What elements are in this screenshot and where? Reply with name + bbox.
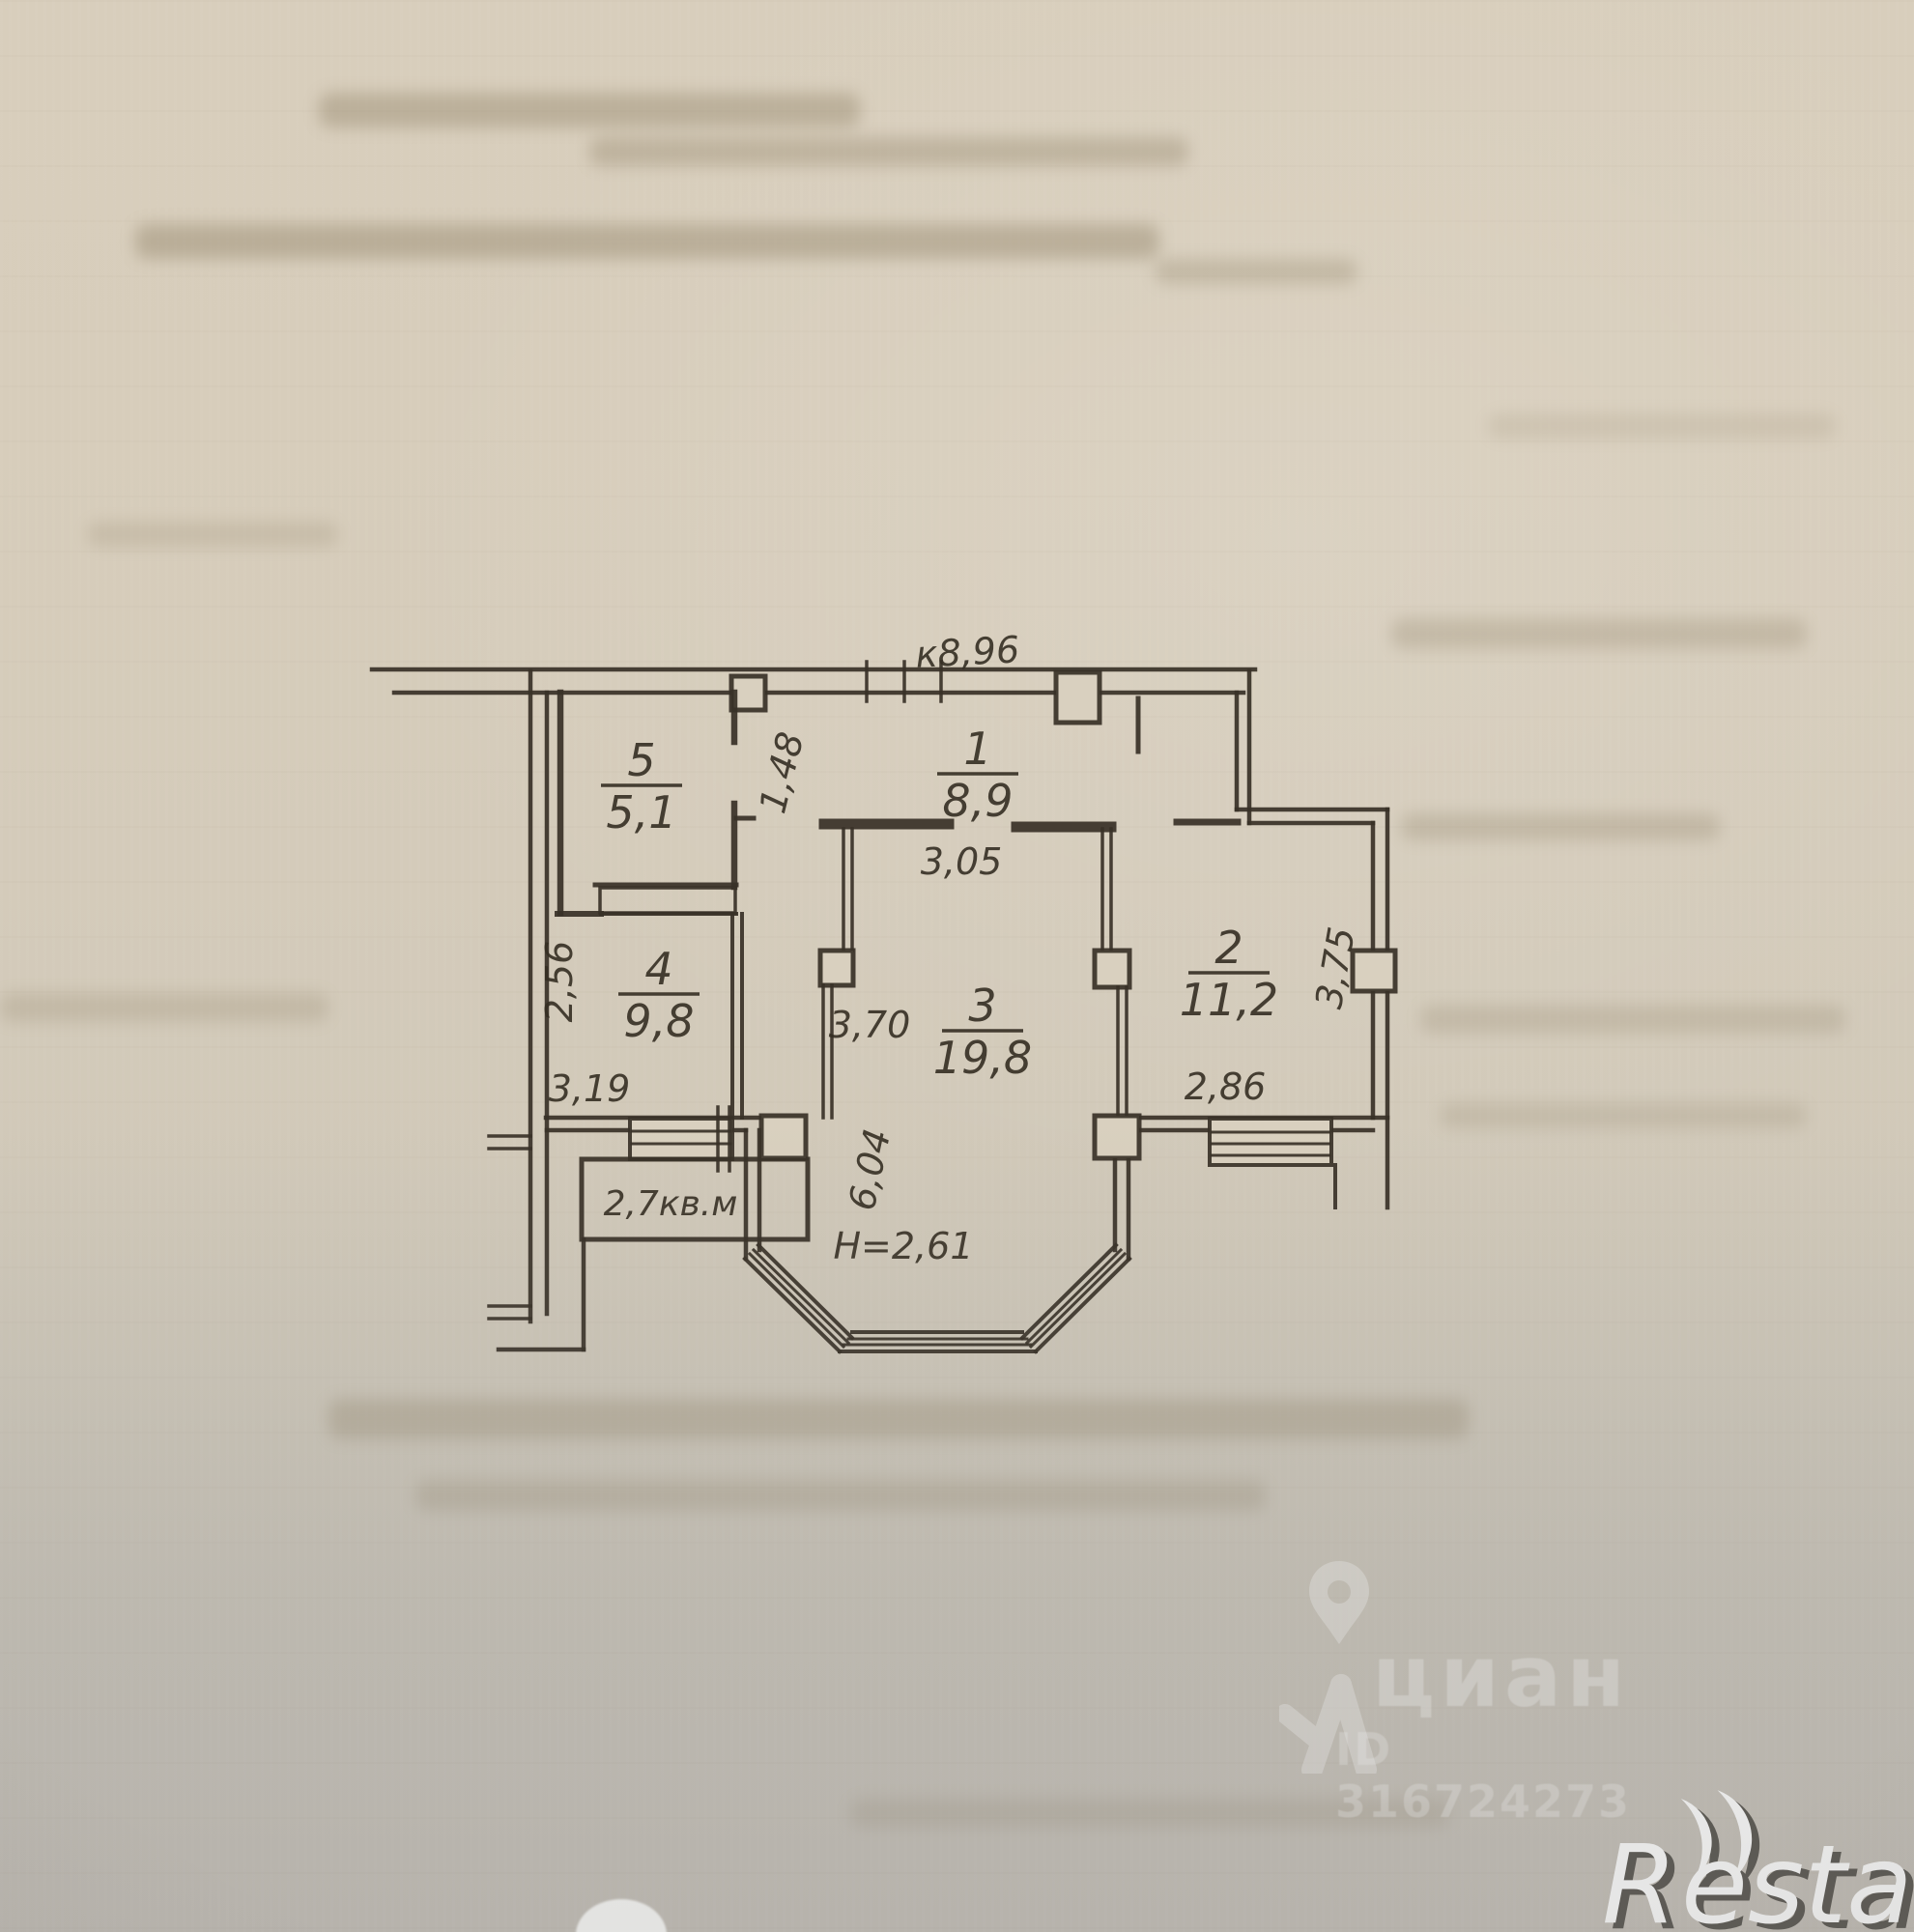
dim-bay-depth: 6,04 [841, 1125, 900, 1214]
room2-window [1210, 1119, 1331, 1165]
room-labels: 1 8,9 2 11,2 3 19,8 4 9,8 5 [601, 723, 1278, 1084]
room-area: 9,8 [623, 995, 694, 1047]
dim-room4-left: 2,56 [538, 941, 581, 1023]
room-label-4: 4 9,8 [618, 943, 700, 1047]
interior-walls [557, 693, 1238, 1158]
room-number: 1 [963, 723, 991, 775]
dim-room3-left: 3,70 [829, 1004, 911, 1046]
dim-room2-bottom: 2,86 [1185, 1065, 1267, 1108]
room-number: 5 [627, 734, 655, 786]
wardrobe [600, 888, 735, 913]
dim-hall-width: 3,05 [921, 840, 1003, 883]
room-label-2: 2 11,2 [1180, 922, 1278, 1026]
room-area: 5,1 [606, 786, 676, 838]
room-label-3: 3 19,8 [933, 980, 1032, 1084]
windows-and-blocks [630, 662, 1395, 1171]
room-area: 19,8 [933, 1032, 1032, 1084]
dim-balcony-area: 2,7кв.м [604, 1184, 738, 1224]
room-number: 2 [1214, 922, 1243, 974]
room-area: 8,9 [942, 775, 1013, 827]
column-block [820, 951, 853, 985]
dim-ceiling-height: Н=2,61 [833, 1225, 973, 1267]
floor-plan-drawing: 1 8,9 2 11,2 3 19,8 4 9,8 5 [0, 0, 1914, 1932]
room-label-5: 5 5,1 [601, 734, 682, 838]
column-block [761, 1116, 806, 1158]
dim-top: к8,96 [914, 628, 1020, 676]
entry-wall-block [1056, 672, 1100, 723]
room-label-1: 1 8,9 [937, 723, 1018, 827]
room-number: 4 [644, 943, 672, 995]
dim-room2-right: 3,75 [1307, 923, 1363, 1011]
dim-room4-bottom: 3,19 [549, 1067, 631, 1110]
dim-passage-width: 1,48 [751, 727, 812, 817]
floorplan-photo: 1 8,9 2 11,2 3 19,8 4 9,8 5 [0, 0, 1914, 1932]
room-number: 3 [968, 980, 996, 1032]
column-block [1095, 951, 1129, 987]
right-wall-window [1353, 951, 1395, 991]
column-block [1095, 1116, 1139, 1158]
room-area: 11,2 [1180, 974, 1278, 1026]
